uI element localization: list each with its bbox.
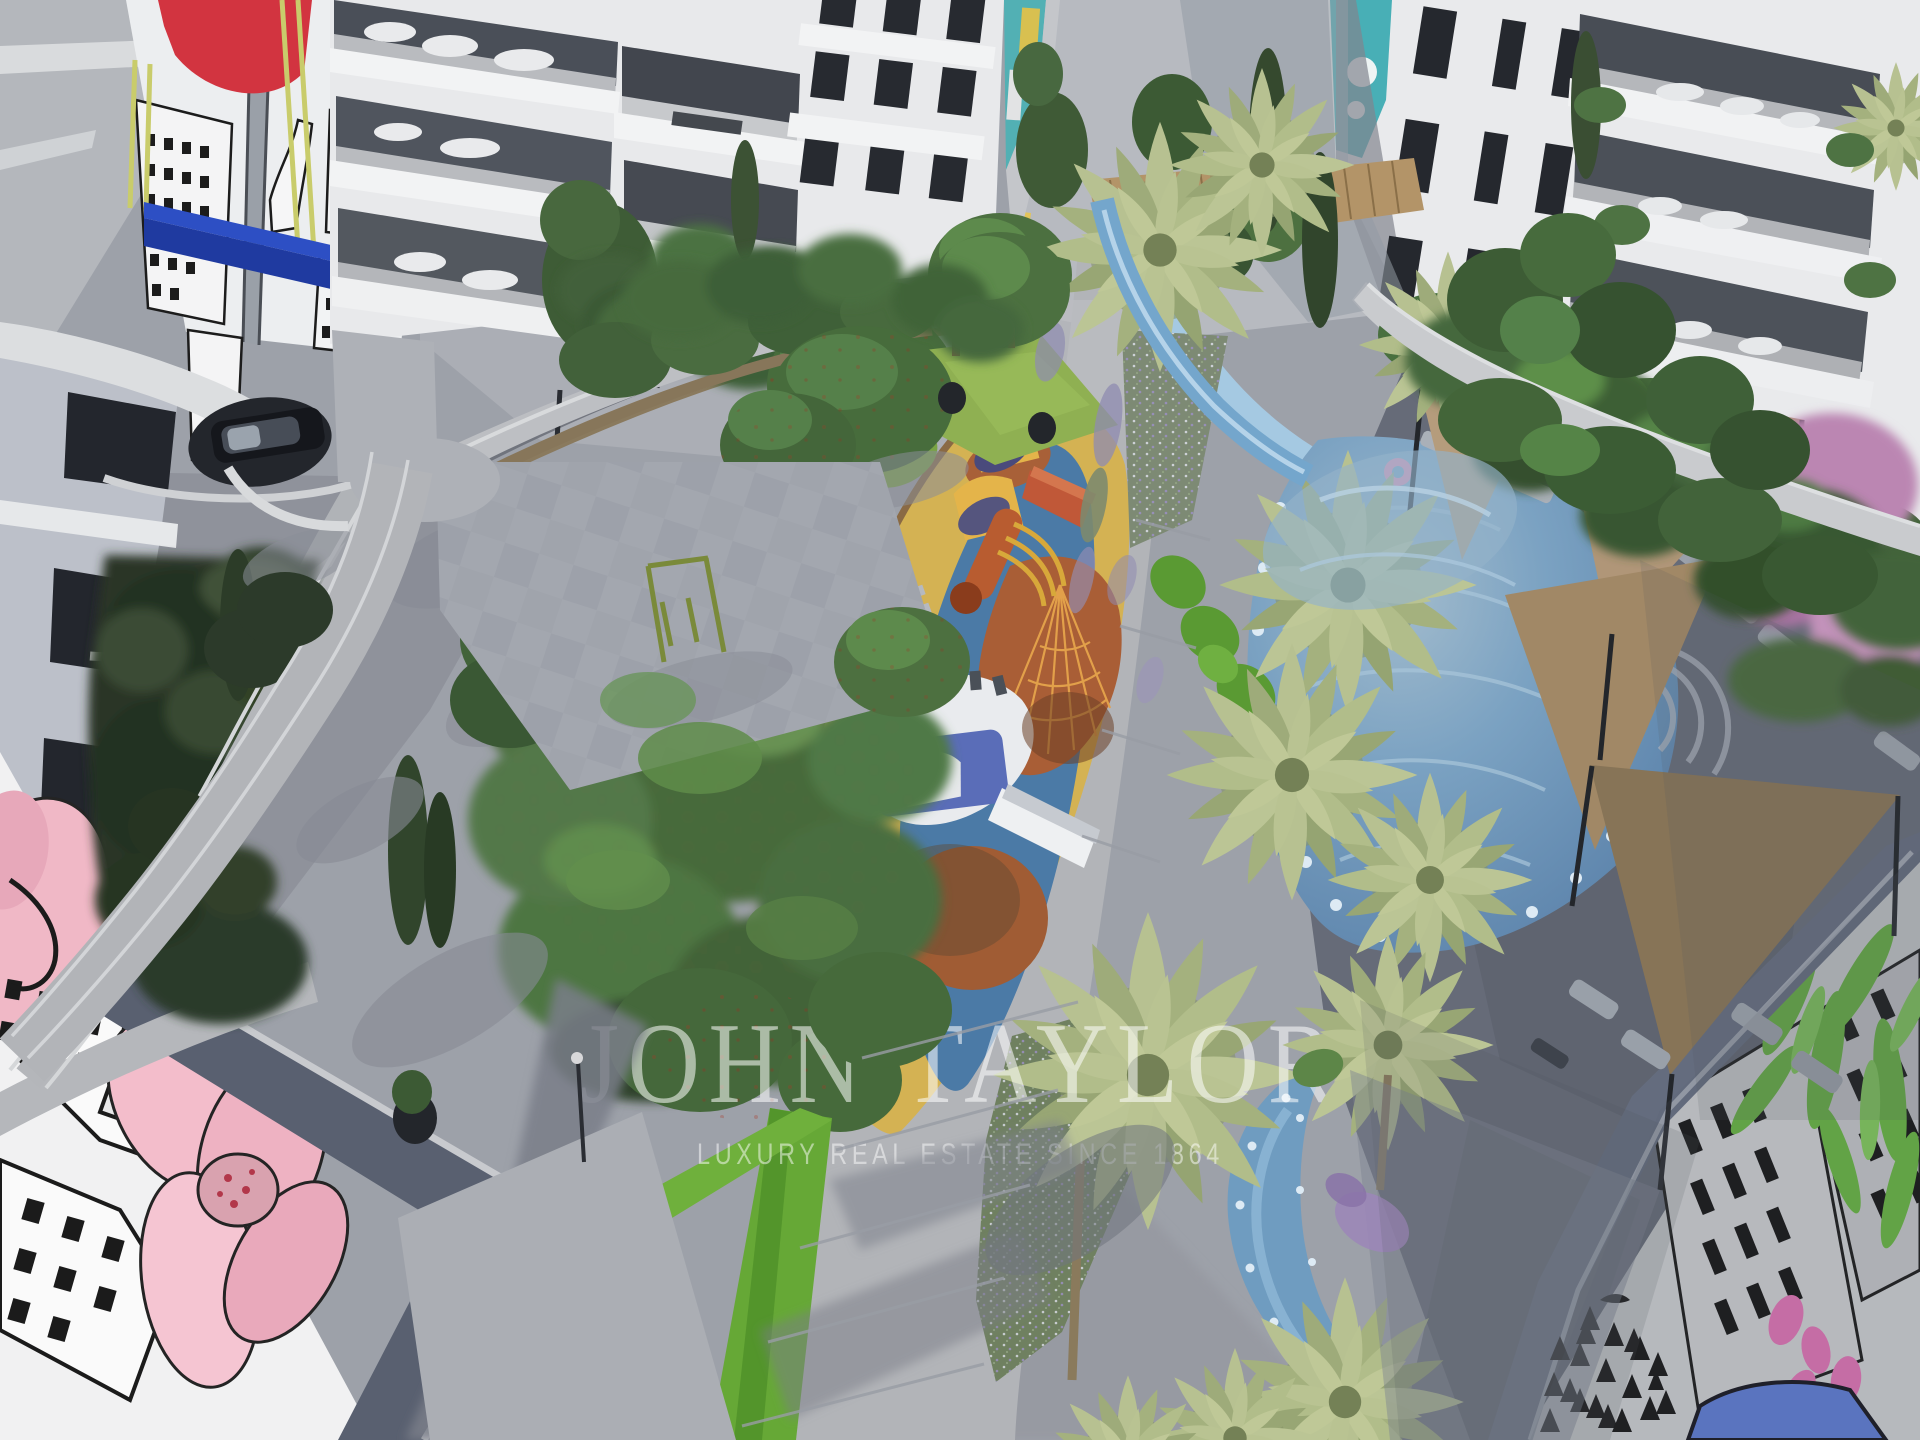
svg-text:JOHN TAYLOR: JOHN TAYLOR <box>580 1000 1343 1128</box>
